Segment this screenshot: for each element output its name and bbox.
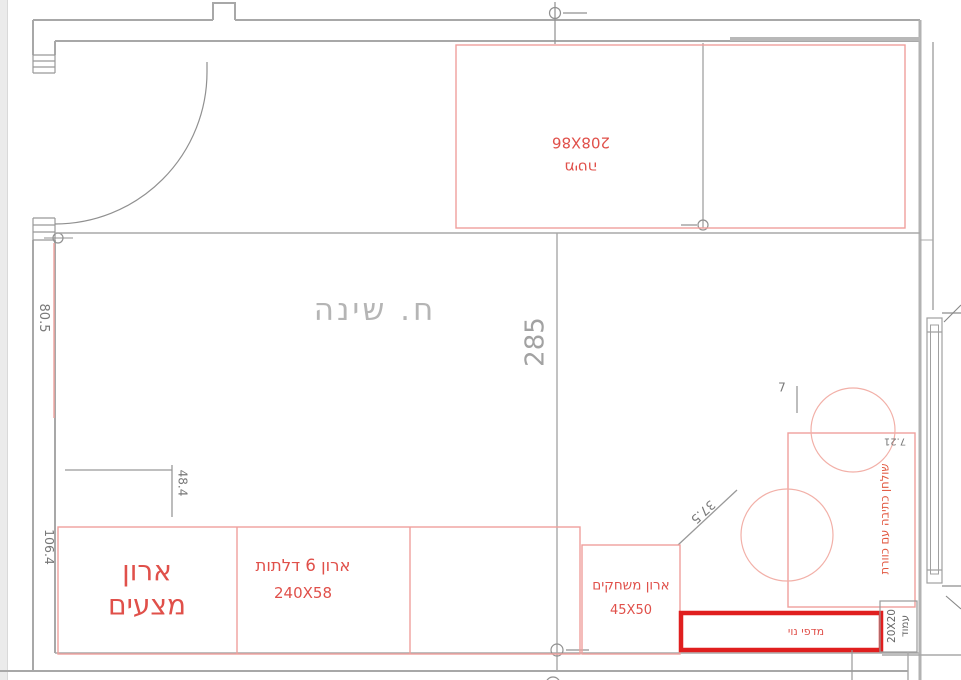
six-door-closet-size: 240X58 (274, 585, 332, 602)
dimension-closet-offset: 48.4 (175, 470, 188, 497)
bed-outline (456, 45, 905, 228)
dimension-small: 7 (778, 381, 786, 394)
column-size: 20X20 (886, 609, 899, 643)
games-closet-label: ארון משחקים (592, 579, 669, 594)
stool-circle-top (811, 388, 895, 472)
linen-closet-label-line1: ארון (108, 554, 186, 588)
column-label: 20X20 עמוד (886, 609, 912, 643)
dimension-lines (65, 386, 797, 545)
bed-size-label: 208X86 (552, 134, 610, 151)
floorplan-canvas[interactable]: 208X86 מיטה ח. שינה 285 80.5 106.4 48.4 … (0, 0, 961, 680)
six-door-closet-label: ארון 6 דלתות (256, 557, 351, 575)
dimension-left-lower: 106.4 (42, 529, 56, 565)
bottom-right-junction (852, 650, 961, 680)
decor-shelves-box (681, 613, 881, 650)
linen-closet-label-line2: מצעים (108, 588, 186, 622)
bed-label: מיטה (564, 159, 597, 176)
dimension-left-upper: 80.5 (36, 304, 50, 333)
column-name: עמוד (899, 609, 912, 643)
games-closet-outline (582, 545, 680, 654)
dimension-desk-gap: 7.21 (884, 436, 906, 447)
decor-shelves-label: מדפי נוי (788, 626, 824, 638)
linen-closet-label: ארון מצעים (108, 554, 186, 621)
furniture-outlines (58, 45, 915, 654)
dimension-room-width: 285 (522, 317, 551, 367)
desk-outline (788, 433, 915, 607)
right-window (927, 305, 961, 609)
games-closet-size: 45X50 (610, 604, 652, 618)
room-name-label: ח. שינה (314, 293, 437, 327)
desk-label: שולחן כתיבה עם כוורת (879, 463, 892, 574)
door-frame-hatch (33, 55, 55, 240)
door-arc (44, 62, 207, 243)
stool-circle-bottom (741, 489, 833, 581)
